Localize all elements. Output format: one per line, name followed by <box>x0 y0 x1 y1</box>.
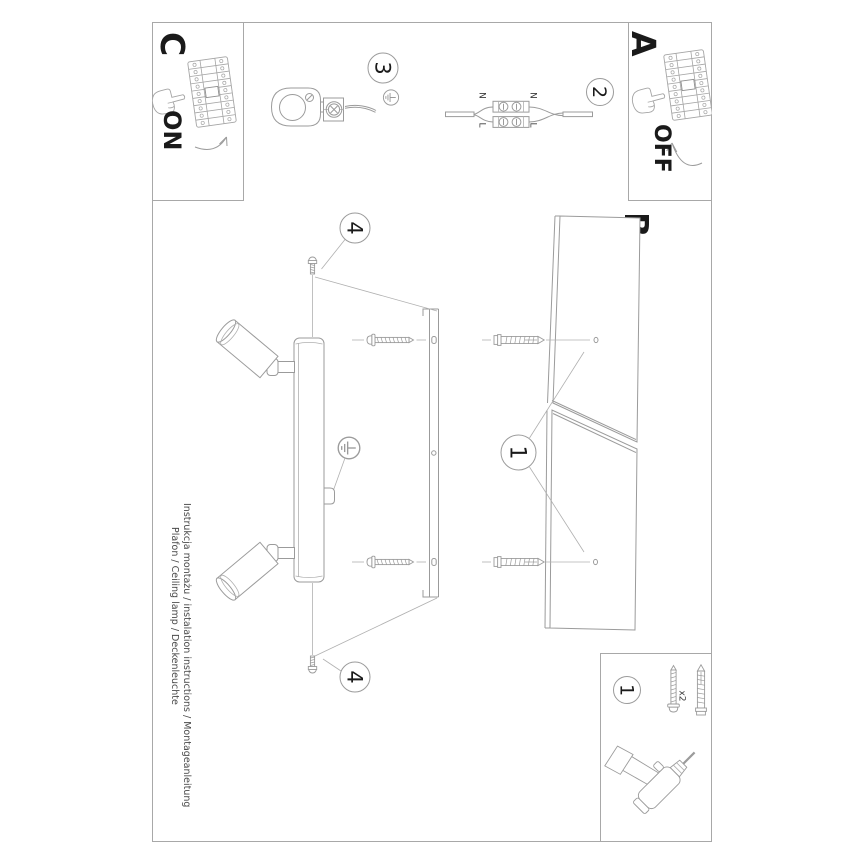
footer-product-line: Plafon / Ceiling lamp / Deckenleuchte <box>169 527 180 705</box>
ceiling-panel-right <box>545 410 637 630</box>
footer-title-line: Instrukcja montażu / instalation instruc… <box>181 503 192 807</box>
circuit-breaker-icon <box>188 57 237 128</box>
canopy-terminal-block <box>324 98 344 121</box>
cable-top <box>563 112 593 117</box>
wall-plug-icon <box>494 557 544 568</box>
circuit-breaker-icon <box>664 50 712 121</box>
wire-label-n-bottom: N <box>477 92 487 99</box>
step-a-label: A <box>624 31 663 57</box>
off-label: OFF <box>649 124 674 173</box>
screenshot-canvas: A OFF B 2 <box>0 0 868 868</box>
callout-2: 2 <box>588 86 610 98</box>
on-label: ON <box>158 110 186 151</box>
instruction-sheet-rotated: A OFF B 2 <box>152 22 712 842</box>
callout-1: 1 <box>505 446 530 460</box>
instruction-drawing: A OFF B 2 <box>152 22 712 842</box>
wall-plug-icon <box>494 335 544 346</box>
callout-1-parts: 1 <box>616 684 638 696</box>
callout-3: 3 <box>371 61 395 74</box>
wire-label-n-top: N <box>528 92 538 99</box>
cable-bottom <box>446 112 475 117</box>
wire-label-l-top: L <box>528 122 538 127</box>
step-c-label: C <box>153 32 192 56</box>
callout-4-left: 4 <box>343 221 367 234</box>
canopy-drawing <box>272 88 324 126</box>
wire-label-l-bottom: L <box>477 122 487 127</box>
dowel-quantity: x2 <box>677 690 687 701</box>
wall-plug-icon <box>696 665 707 715</box>
callout-4-right: 4 <box>343 670 367 683</box>
